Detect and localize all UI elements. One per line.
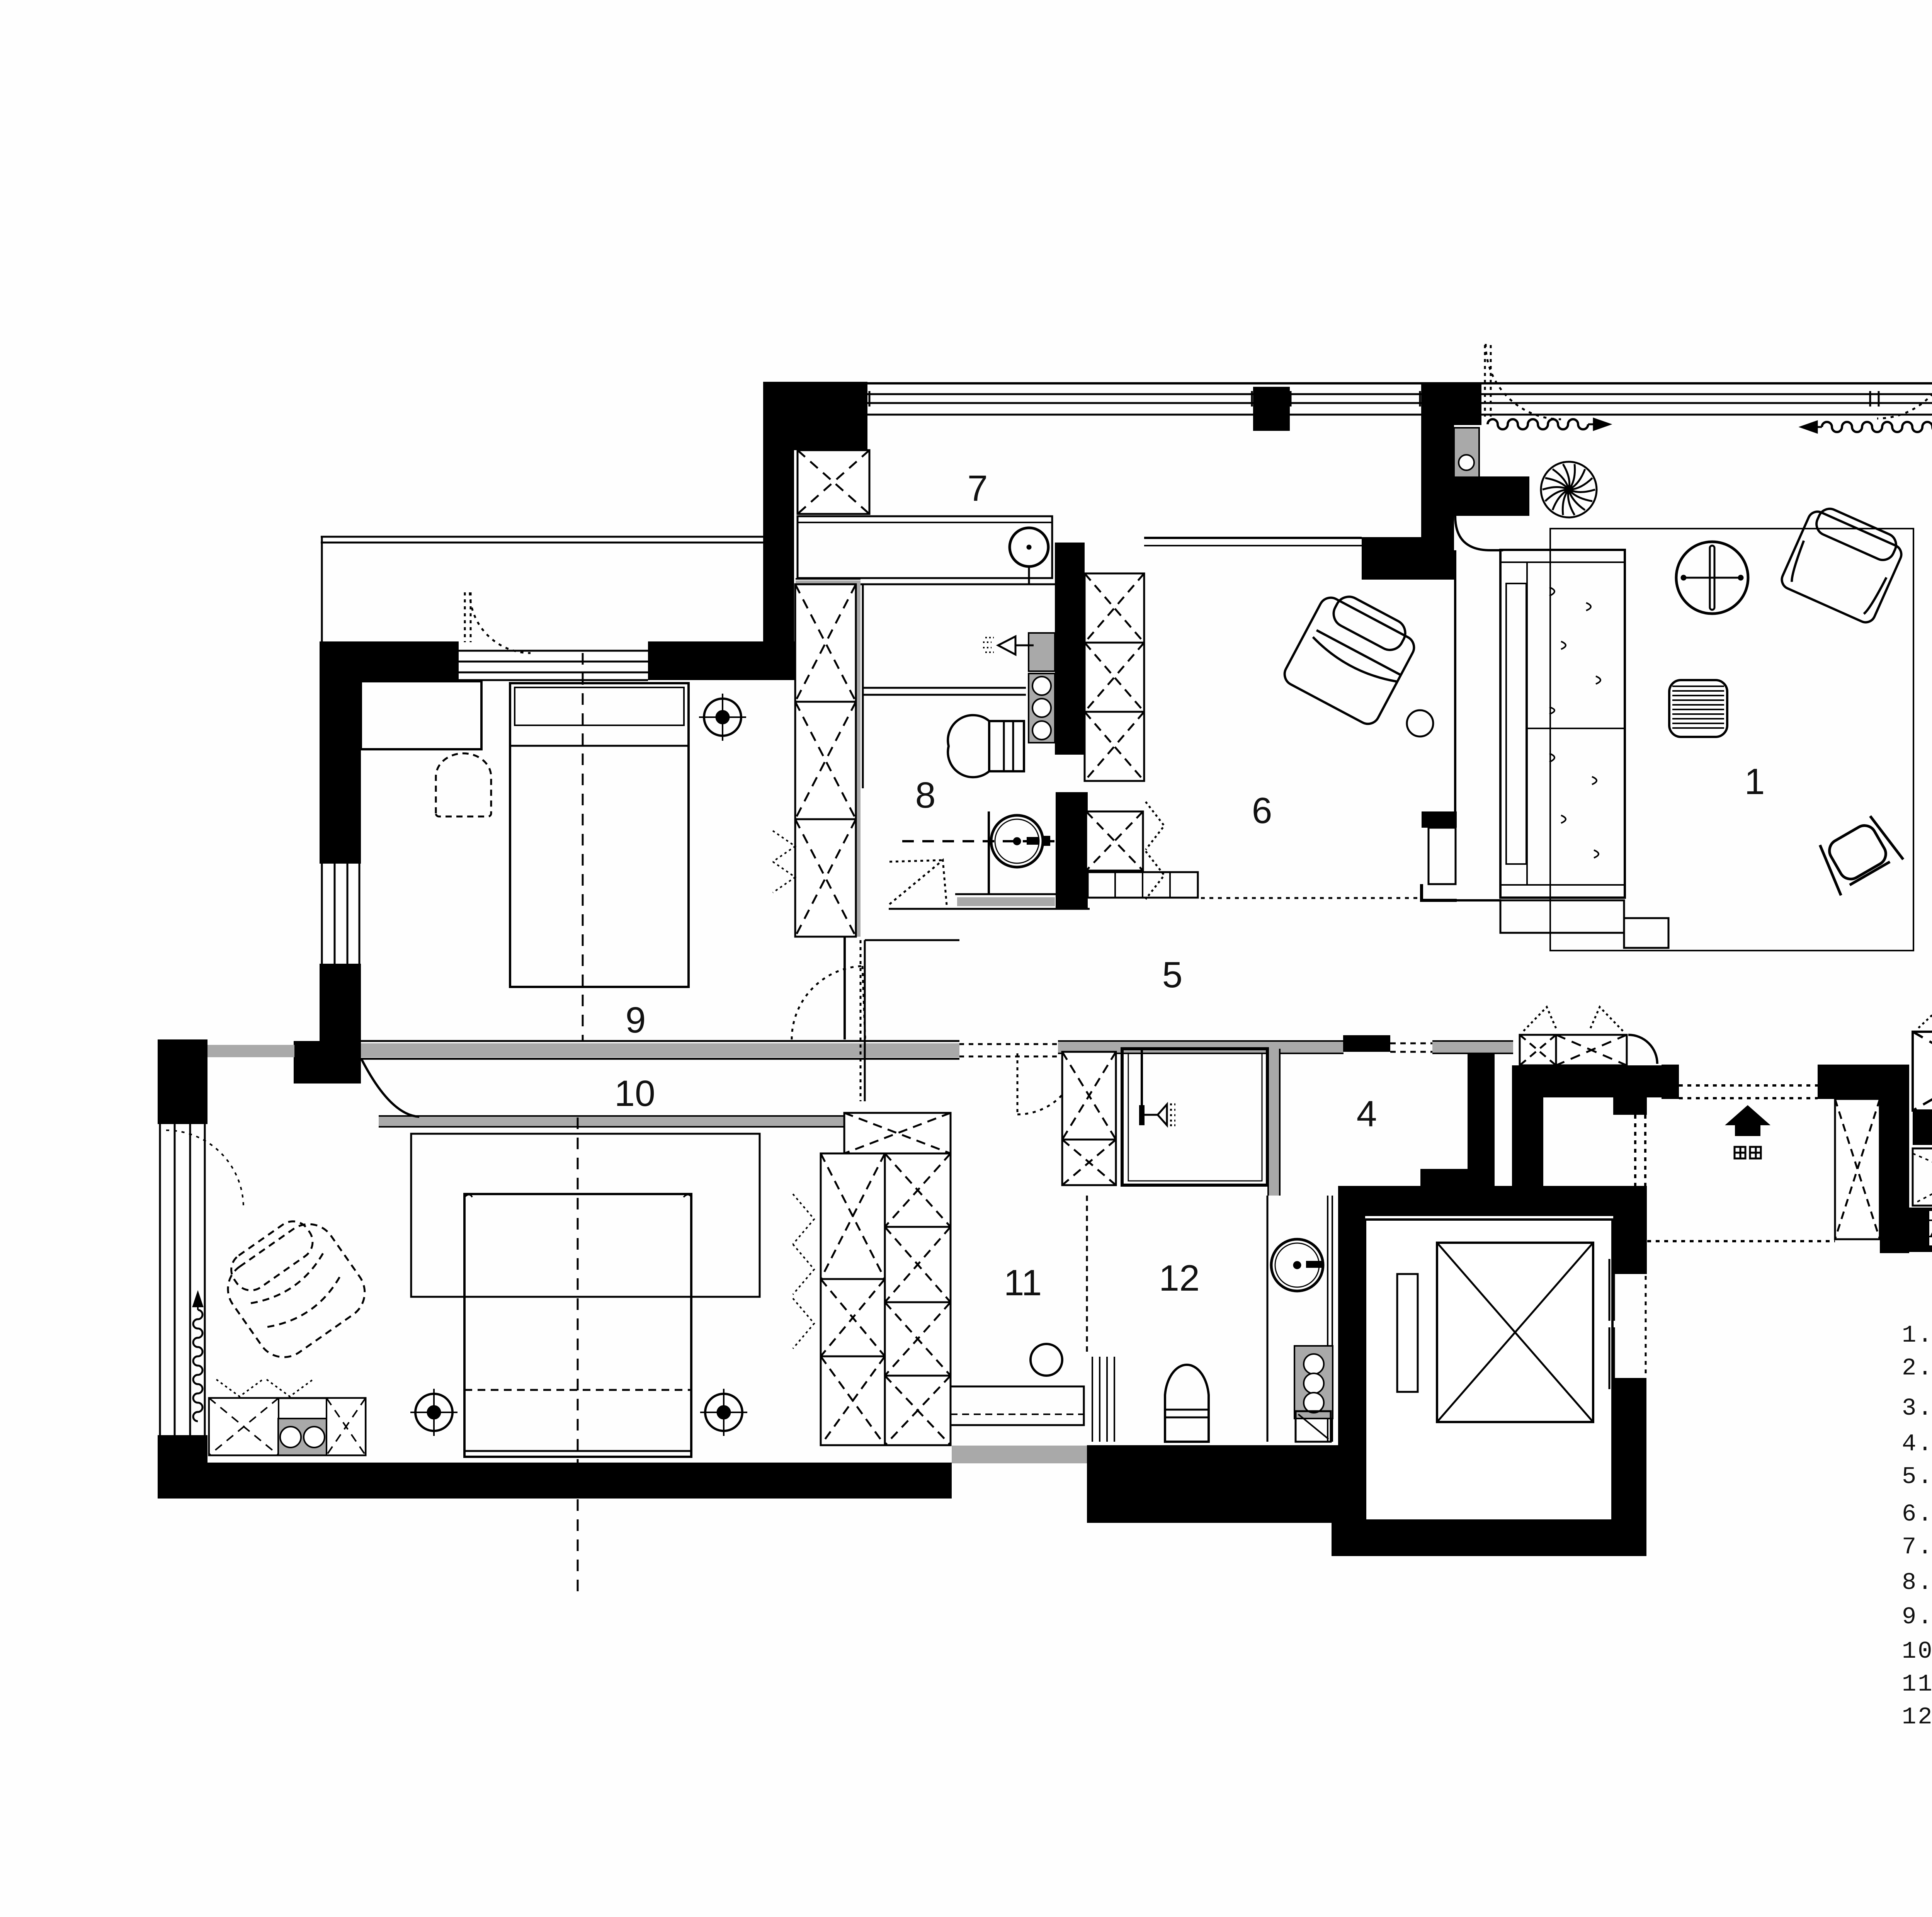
svg-text:3.: 3. bbox=[1902, 1395, 1932, 1422]
svg-text:5: 5 bbox=[1162, 954, 1183, 995]
svg-text:8.: 8. bbox=[1902, 1569, 1932, 1596]
svg-text:2.: 2. bbox=[1902, 1354, 1932, 1382]
svg-text:10: 10 bbox=[614, 1073, 655, 1114]
svg-text:11.: 11. bbox=[1902, 1670, 1932, 1698]
svg-text:5.: 5. bbox=[1902, 1463, 1932, 1490]
svg-text:4: 4 bbox=[1357, 1094, 1377, 1135]
svg-text:4.: 4. bbox=[1902, 1430, 1932, 1458]
svg-text:10.: 10. bbox=[1902, 1638, 1932, 1665]
svg-text:1.: 1. bbox=[1902, 1322, 1932, 1349]
svg-text:7.: 7. bbox=[1902, 1533, 1932, 1561]
svg-text:6.: 6. bbox=[1902, 1500, 1932, 1528]
svg-text:7: 7 bbox=[968, 468, 988, 509]
svg-text:9.: 9. bbox=[1902, 1603, 1932, 1631]
svg-text:6: 6 bbox=[1252, 790, 1272, 831]
svg-text:8: 8 bbox=[915, 775, 936, 816]
svg-text:12: 12 bbox=[1159, 1258, 1200, 1299]
svg-text:11: 11 bbox=[1004, 1262, 1042, 1303]
svg-text:12.: 12. bbox=[1902, 1703, 1932, 1731]
svg-text:1: 1 bbox=[1745, 761, 1765, 802]
svg-text:9: 9 bbox=[626, 1000, 646, 1041]
